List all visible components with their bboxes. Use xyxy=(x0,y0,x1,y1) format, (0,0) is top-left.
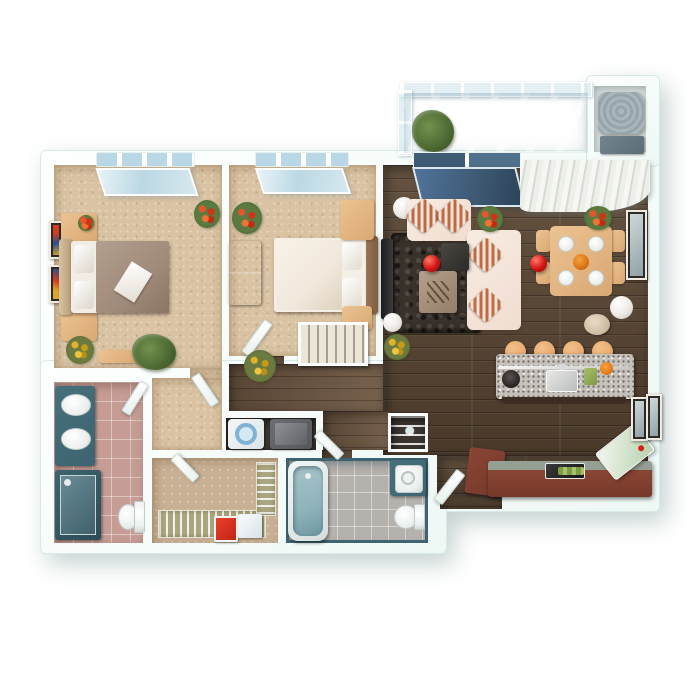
coffee-table xyxy=(419,271,457,313)
living-flower-pot xyxy=(477,206,503,232)
closet-shelving-right xyxy=(256,462,276,516)
bedroom1-bed xyxy=(59,239,171,315)
island-fruit-bowl xyxy=(600,362,613,375)
pouf xyxy=(584,314,610,335)
closet-red-box xyxy=(214,516,238,542)
dryer-panel xyxy=(275,423,307,445)
bath2-toilet-tank xyxy=(414,504,425,530)
bedroom2-flowers xyxy=(232,202,262,234)
ac-condenser-unit xyxy=(598,92,644,134)
dining-chair-1 xyxy=(536,230,551,252)
bath2-vanity xyxy=(390,460,426,496)
bed1-pillow-bottom xyxy=(74,281,94,309)
bath1-sink-2 xyxy=(61,428,91,450)
dining-table xyxy=(550,226,612,296)
bath1-shower xyxy=(55,470,101,540)
coffee-table-tray xyxy=(427,281,449,303)
island-cutting-board xyxy=(584,368,597,385)
bedroom1-corner-flowers xyxy=(194,200,220,228)
bed2-headboard xyxy=(366,236,378,314)
washer-door xyxy=(235,423,257,445)
tv-console xyxy=(381,239,393,319)
place-setting-2 xyxy=(588,236,604,252)
bed1-pillow-top xyxy=(74,245,94,273)
bedroom2-bed xyxy=(274,236,378,314)
red-sphere-lamp-1 xyxy=(423,255,440,272)
bathtub-drain xyxy=(305,473,311,479)
bedroom2-window xyxy=(255,152,349,167)
bedroom2-closet-organizer xyxy=(298,322,368,366)
bedroom2-dresser xyxy=(229,241,261,305)
island-cooktop xyxy=(502,370,520,388)
bath1-toilet-tank xyxy=(134,501,145,533)
bedroom1-plant xyxy=(132,334,176,370)
kitchen-island xyxy=(496,354,634,399)
floor-plan-stage xyxy=(0,0,700,700)
bedroom1-yellow-flowers xyxy=(66,336,94,364)
bed2-duvet xyxy=(276,240,342,310)
red-sphere-lamp-2 xyxy=(530,255,547,272)
glass-side-table xyxy=(441,243,469,271)
white-side-table xyxy=(383,313,402,332)
bed2-pillow-top xyxy=(342,242,362,270)
place-setting-4 xyxy=(588,270,604,286)
bath2-sink-basin xyxy=(401,471,415,485)
vestibule-floor xyxy=(152,378,222,450)
dining-chair-3 xyxy=(610,230,625,252)
vertical-blinds xyxy=(520,160,650,212)
island-sink xyxy=(546,370,578,392)
dryer xyxy=(270,419,312,449)
hall-flowers-2 xyxy=(384,334,410,360)
island-base xyxy=(502,397,626,404)
bath1-sink-1 xyxy=(61,394,91,416)
hall-flowers-1 xyxy=(244,350,276,382)
bedroom2-window-pane xyxy=(255,168,351,194)
linen-closet-floor xyxy=(388,413,428,452)
bedroom1-window xyxy=(96,152,195,167)
shower-head xyxy=(64,479,71,486)
bedroom1-nightstand-flowers xyxy=(78,215,94,231)
place-setting-1 xyxy=(558,236,574,252)
bedroom2-desk xyxy=(340,200,374,240)
island-faucet xyxy=(558,364,566,370)
bathtub xyxy=(288,461,328,541)
dining-chair-4 xyxy=(610,262,625,284)
utility-box xyxy=(600,136,644,154)
closet-white-box xyxy=(238,514,262,538)
dining-centerpiece xyxy=(573,254,589,270)
counter-plants xyxy=(558,467,584,475)
bath1-vanity xyxy=(55,386,95,466)
kitchen-wall-art-2 xyxy=(646,394,662,440)
dining-floor-lamp xyxy=(610,296,633,319)
bath1-toilet xyxy=(118,498,144,534)
dining-flowers xyxy=(584,206,612,230)
place-setting-3 xyxy=(558,270,574,286)
bed2-pillow-bottom xyxy=(342,278,362,306)
bath2-toilet xyxy=(394,502,424,530)
fridge-red-dot xyxy=(637,444,645,452)
balcony-plant xyxy=(412,110,454,152)
balcony-sliding-door xyxy=(413,152,521,168)
washer xyxy=(228,419,264,449)
bedroom1-window-pane xyxy=(95,168,198,196)
dining-wall-art xyxy=(626,210,647,280)
